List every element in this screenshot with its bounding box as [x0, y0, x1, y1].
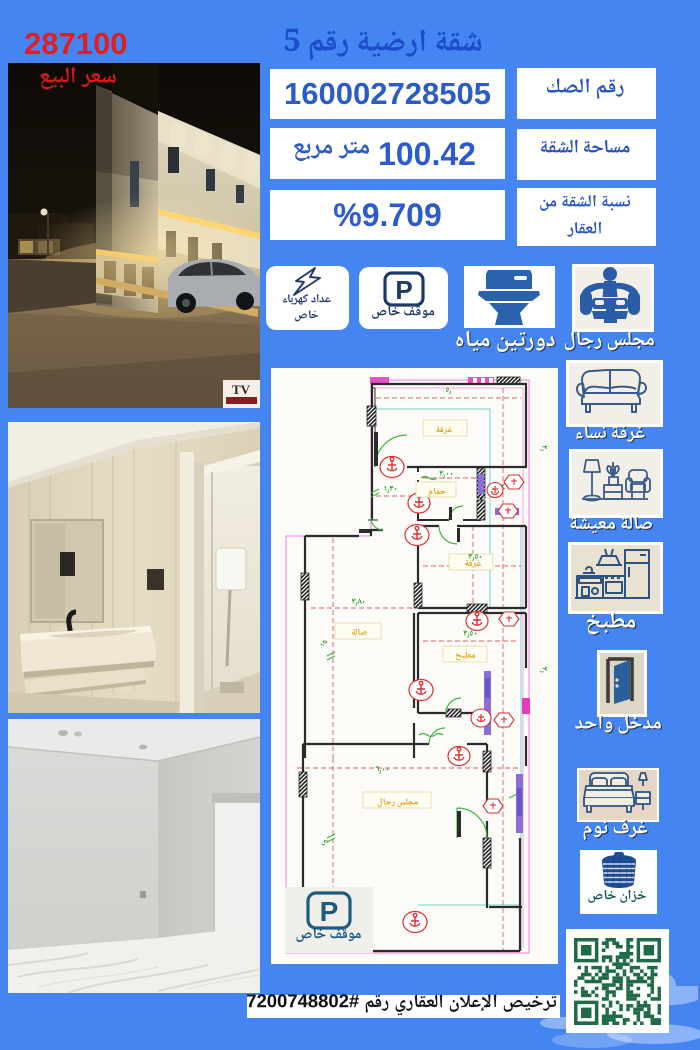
svg-text:P: P — [320, 896, 339, 927]
svg-text:P: P — [395, 275, 412, 305]
svg-text:TV: TV — [232, 382, 251, 397]
